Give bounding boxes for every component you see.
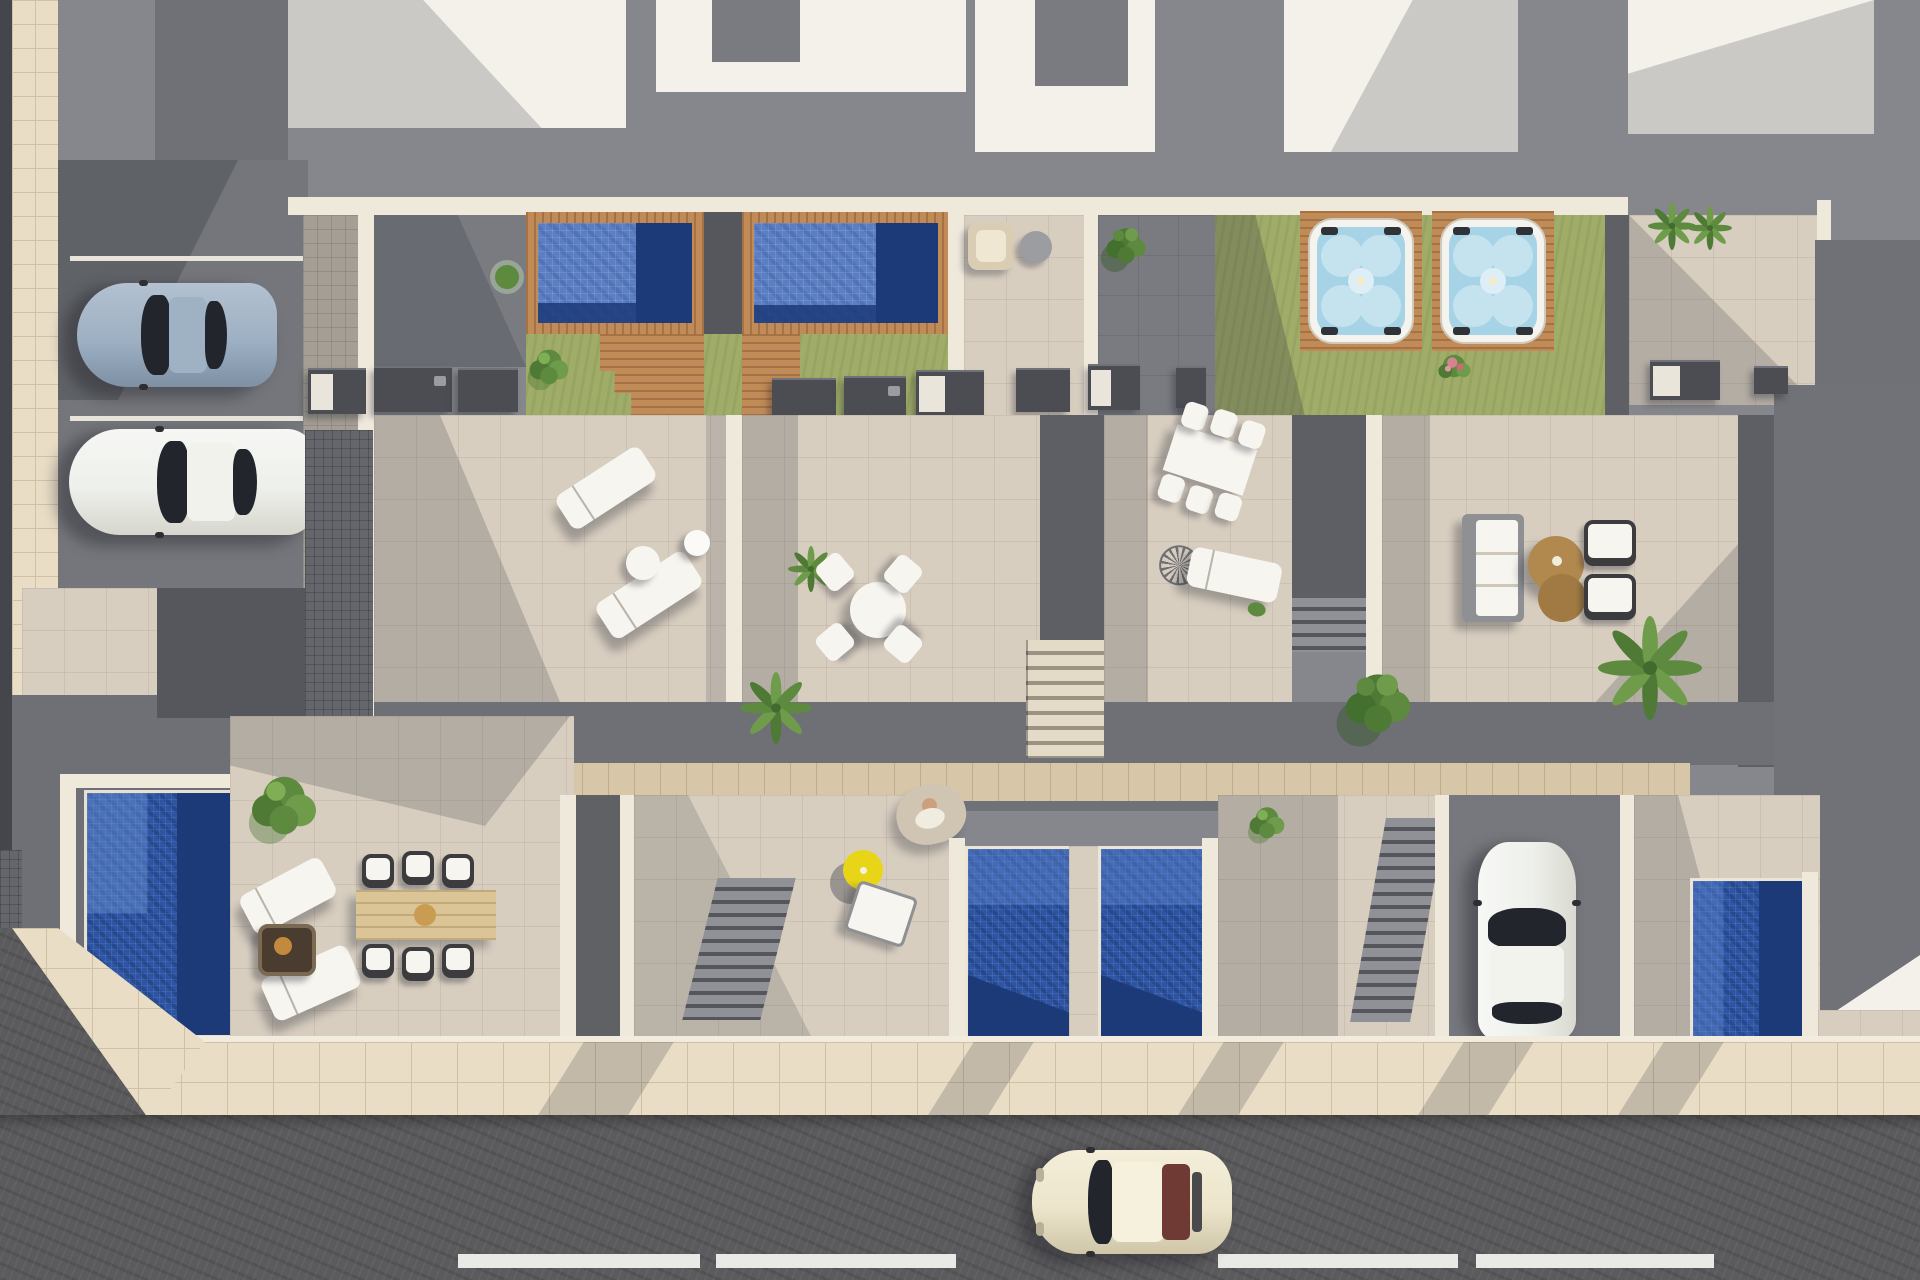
- car-white-parked: [69, 429, 317, 535]
- driveway-wall: [1620, 795, 1634, 1042]
- outdoor-kitchen-counter: [308, 368, 366, 414]
- roof: [1628, 0, 1874, 134]
- outdoor-kitchen-counter: [1088, 364, 1140, 410]
- outdoor-kitchen-counter: [1650, 360, 1720, 400]
- plunge-pool: [1098, 846, 1208, 1048]
- armchair: [1584, 520, 1636, 566]
- pool-wall: [1802, 872, 1818, 1042]
- leafy-tree: [1098, 216, 1154, 274]
- side-table-gray: [1020, 231, 1052, 263]
- aerial-development-render: [0, 0, 1920, 1280]
- pool-wall: [60, 774, 238, 788]
- car-roof: [169, 297, 207, 373]
- lane-marking: [458, 1254, 700, 1268]
- bush: [520, 336, 578, 396]
- car-roof: [1490, 946, 1564, 1004]
- car-sports-bluegray: [77, 283, 277, 387]
- neighbor-wall-block: [1815, 240, 1920, 390]
- jacuzzi: [1308, 218, 1414, 344]
- rear-window: [1492, 1002, 1562, 1024]
- ball-lamp: [684, 530, 710, 556]
- pool-wall: [1202, 838, 1218, 1042]
- windshield: [141, 295, 171, 375]
- pool-highlight: [87, 793, 147, 913]
- wicker-chair: [442, 854, 474, 888]
- outdoor-kitchen-counter: [458, 368, 518, 412]
- roof: [288, 0, 626, 128]
- pool-shadow: [1101, 975, 1205, 1045]
- parasol-pole: [860, 867, 867, 874]
- pool-shadow: [1759, 881, 1805, 1045]
- coffee-table-round: [1538, 574, 1586, 622]
- ac-unit: [1754, 366, 1788, 394]
- pool-highlight: [1101, 849, 1205, 905]
- outdoor-kitchen-counter: [916, 370, 984, 416]
- side-table: [626, 546, 660, 580]
- engine-grille: [1192, 1172, 1202, 1232]
- wicker-chair: [362, 854, 394, 888]
- palm-tree-large: [1590, 616, 1710, 720]
- headlight: [1036, 1222, 1044, 1236]
- garden-wall: [620, 795, 634, 1042]
- wicker-chair: [362, 944, 394, 978]
- rooftop-pool: [754, 223, 938, 323]
- roof: [1284, 0, 1518, 152]
- plunge-pool: [1690, 878, 1808, 1048]
- bush: [232, 756, 336, 852]
- street-curb-shadow: [0, 1115, 1920, 1131]
- windshield: [1088, 1160, 1114, 1244]
- table-decor: [414, 904, 436, 926]
- sidewalk: [135, 1042, 1920, 1118]
- palm-tree: [1688, 206, 1732, 250]
- pool-shadow: [754, 305, 938, 323]
- stairs: [1292, 598, 1366, 652]
- table-decor: [1552, 556, 1562, 566]
- building-wall-block: [155, 0, 288, 182]
- planter-tree: [495, 265, 519, 289]
- jacuzzi: [1440, 218, 1546, 344]
- pool-divider: [1069, 846, 1098, 1042]
- pool-highlight: [1693, 881, 1723, 1045]
- roof: [656, 0, 966, 92]
- pool-wall: [949, 838, 965, 1042]
- garden-wall: [560, 795, 576, 1042]
- plant-pot: [1246, 601, 1267, 618]
- leafy-tree: [1332, 652, 1424, 752]
- walkway: [576, 795, 620, 1042]
- flower-shr: [1426, 340, 1482, 392]
- curb-edge: [0, 0, 12, 945]
- rooftop-pool: [538, 223, 692, 323]
- outdoor-kitchen-counter: [1016, 368, 1070, 412]
- lounge-chair-tan: [968, 222, 1014, 270]
- armchair: [1584, 574, 1636, 620]
- garage-roof-block: [157, 588, 312, 718]
- roof-notch: [1035, 0, 1128, 86]
- classic-car-cream: [1032, 1150, 1232, 1254]
- outdoor-sofa: [1462, 514, 1524, 622]
- paver-patch: [22, 588, 157, 695]
- windshield: [1488, 908, 1566, 948]
- pool-shadow: [968, 975, 1072, 1045]
- windshield: [157, 441, 189, 523]
- wicker-chair: [402, 947, 434, 981]
- stairs-central: [1026, 640, 1104, 758]
- lane-marking: [1476, 1254, 1714, 1268]
- pool-deep-end: [177, 793, 233, 1035]
- fire-pit: [258, 924, 316, 976]
- plunge-pool: [965, 846, 1075, 1048]
- parking-bay-line: [70, 416, 308, 421]
- outdoor-kitchen-counter: [374, 366, 452, 412]
- driveway-wall: [1435, 795, 1449, 1042]
- lane-marking: [716, 1254, 956, 1268]
- rear-window-band: [1162, 1164, 1190, 1240]
- headlight: [1036, 1168, 1044, 1182]
- car-roof: [187, 443, 235, 521]
- outdoor-kitchen-counter: [844, 376, 906, 416]
- person-body: [913, 805, 947, 832]
- rear-window: [205, 301, 227, 369]
- car-white-driveway: [1478, 842, 1576, 1042]
- roof-notch: [712, 0, 800, 62]
- wicker-chair: [442, 944, 474, 978]
- parking-bay-line: [70, 256, 306, 261]
- walkway-gap: [1605, 215, 1629, 416]
- pool-shadow: [538, 303, 692, 323]
- car-roof: [1112, 1162, 1164, 1242]
- palm-tree: [740, 672, 812, 744]
- bush: [1238, 796, 1296, 848]
- outdoor-kitchen-counter: [772, 378, 836, 418]
- rear-window: [233, 449, 257, 515]
- lane-marking: [1218, 1254, 1458, 1268]
- wicker-chair: [402, 851, 434, 885]
- pool-highlight: [968, 849, 1072, 905]
- garden-dining-set: [356, 848, 506, 974]
